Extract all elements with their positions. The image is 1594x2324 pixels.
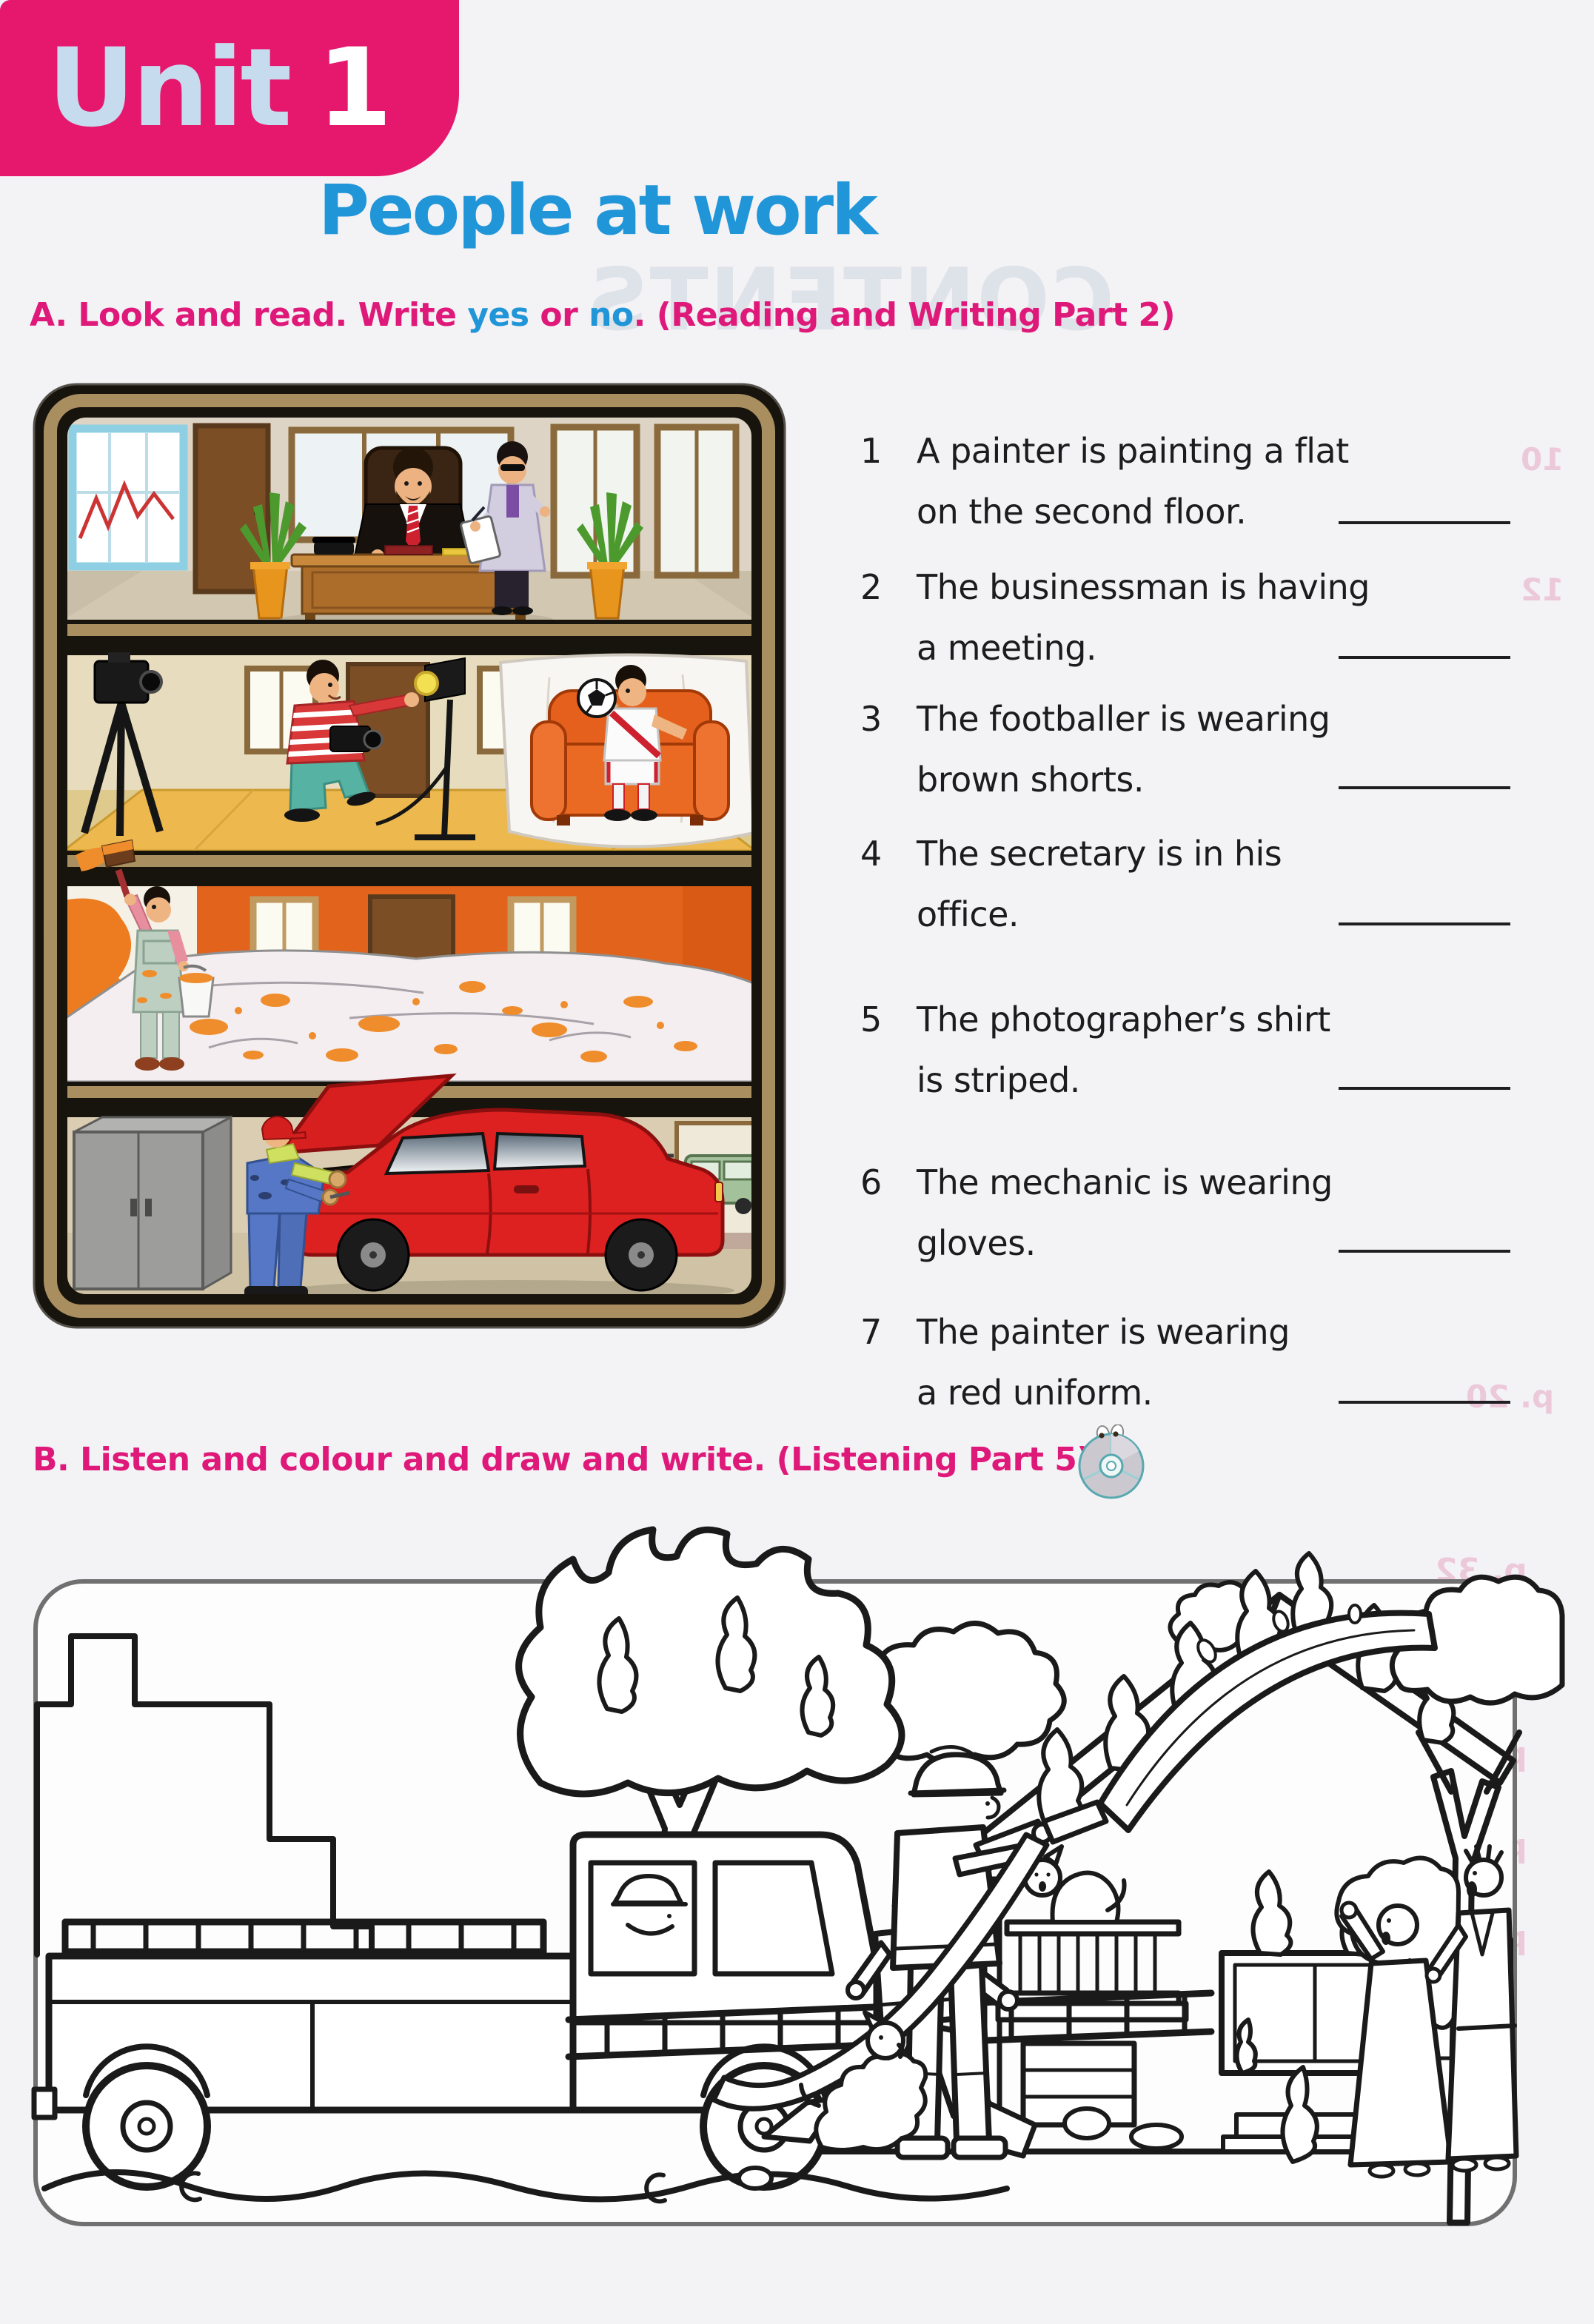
question-text: The footballer is wearing <box>917 699 1330 739</box>
ghost-page-number: 10 <box>1521 441 1564 478</box>
question-text: on the second floor. <box>917 492 1246 532</box>
question-text: The photographer’s shirt <box>917 999 1330 1039</box>
fire-scene-svg <box>22 1510 1573 2240</box>
football-icon <box>578 680 615 717</box>
question-number: 3 <box>860 689 917 810</box>
answer-blank-7[interactable] <box>1339 1401 1510 1404</box>
unit-number: 1 <box>317 25 389 151</box>
question-text: The businessman is having <box>917 567 1370 607</box>
question-number: 2 <box>860 557 917 678</box>
question-number: 7 <box>860 1302 917 1423</box>
glove <box>329 1171 346 1188</box>
heading-a-no: no <box>589 296 634 334</box>
question-text: brown shorts. <box>917 760 1144 800</box>
question-number: 5 <box>860 989 917 1111</box>
studio-floor <box>64 652 755 851</box>
section-a-heading: A. Look and read. Write yes or no. (Read… <box>30 296 1175 334</box>
question-text: office. <box>917 894 1019 934</box>
unit-label: Unit <box>47 25 289 151</box>
metal-cabinet <box>74 1117 231 1289</box>
answer-blank-6[interactable] <box>1339 1250 1510 1253</box>
answer-blank-2[interactable] <box>1339 656 1510 659</box>
question-text: gloves. <box>917 1223 1036 1263</box>
heading-a-text: A. Look and read. Write <box>30 296 467 334</box>
chart-window <box>73 429 184 566</box>
unit-banner: Unit1 <box>0 0 459 176</box>
answer-blank-1[interactable] <box>1339 521 1510 524</box>
heading-a-part: . (Reading and Writing Part 2) <box>634 296 1175 334</box>
phone-icon <box>312 537 355 543</box>
building-illustration <box>31 381 788 1330</box>
heading-a-yes: yes <box>467 296 529 334</box>
answer-blank-4[interactable] <box>1339 922 1510 925</box>
question-item: 5 The photographer’s shirtis striped. <box>860 989 1423 1111</box>
question-text: a red uniform. <box>917 1373 1153 1413</box>
workbook-page: CONTENTS 10 12 p. 20 p. 32 p. 45 p. 58 p… <box>0 0 1594 2324</box>
question-text: a meeting. <box>917 628 1096 668</box>
ghost-page-number: p. 20 <box>1466 1379 1554 1415</box>
question-item: 4 The secretary is in hisoffice. <box>860 823 1423 945</box>
question-text: The secretary is in his <box>917 834 1282 874</box>
question-item: 3 The footballer is wearingbrown shorts. <box>860 689 1423 810</box>
question-text: is striped. <box>917 1060 1080 1100</box>
question-item: 2 The businessman is havinga meeting. <box>860 557 1423 678</box>
cd-icon <box>1074 1424 1149 1500</box>
question-number: 6 <box>860 1152 917 1273</box>
paint-bucket <box>179 978 213 1017</box>
question-number: 1 <box>860 421 917 542</box>
question-item: 7 The painter is wearinga red uniform. <box>860 1302 1423 1423</box>
page-title: People at work <box>318 170 876 251</box>
heading-a-or: or <box>529 296 589 334</box>
question-item: 6 The mechanic is wearinggloves. <box>860 1152 1423 1273</box>
question-text: The painter is wearing <box>917 1312 1290 1352</box>
answer-blank-5[interactable] <box>1339 1087 1510 1090</box>
question-text: A painter is painting a flat <box>917 431 1349 471</box>
debris <box>1065 2109 1109 2138</box>
building-illustration-svg <box>31 381 788 1330</box>
ghost-page-number: 12 <box>1521 572 1564 608</box>
office-floor <box>64 414 755 629</box>
question-text: The mechanic is wearing <box>917 1162 1333 1202</box>
question-number: 4 <box>860 823 917 945</box>
debris <box>1131 2125 1182 2149</box>
debris <box>739 2168 771 2189</box>
answer-blank-3[interactable] <box>1339 786 1510 789</box>
colouring-picture[interactable] <box>22 1510 1573 2240</box>
sunglasses-icon <box>500 464 525 471</box>
section-b-heading: B. Listen and colour and draw and write.… <box>33 1441 1091 1479</box>
